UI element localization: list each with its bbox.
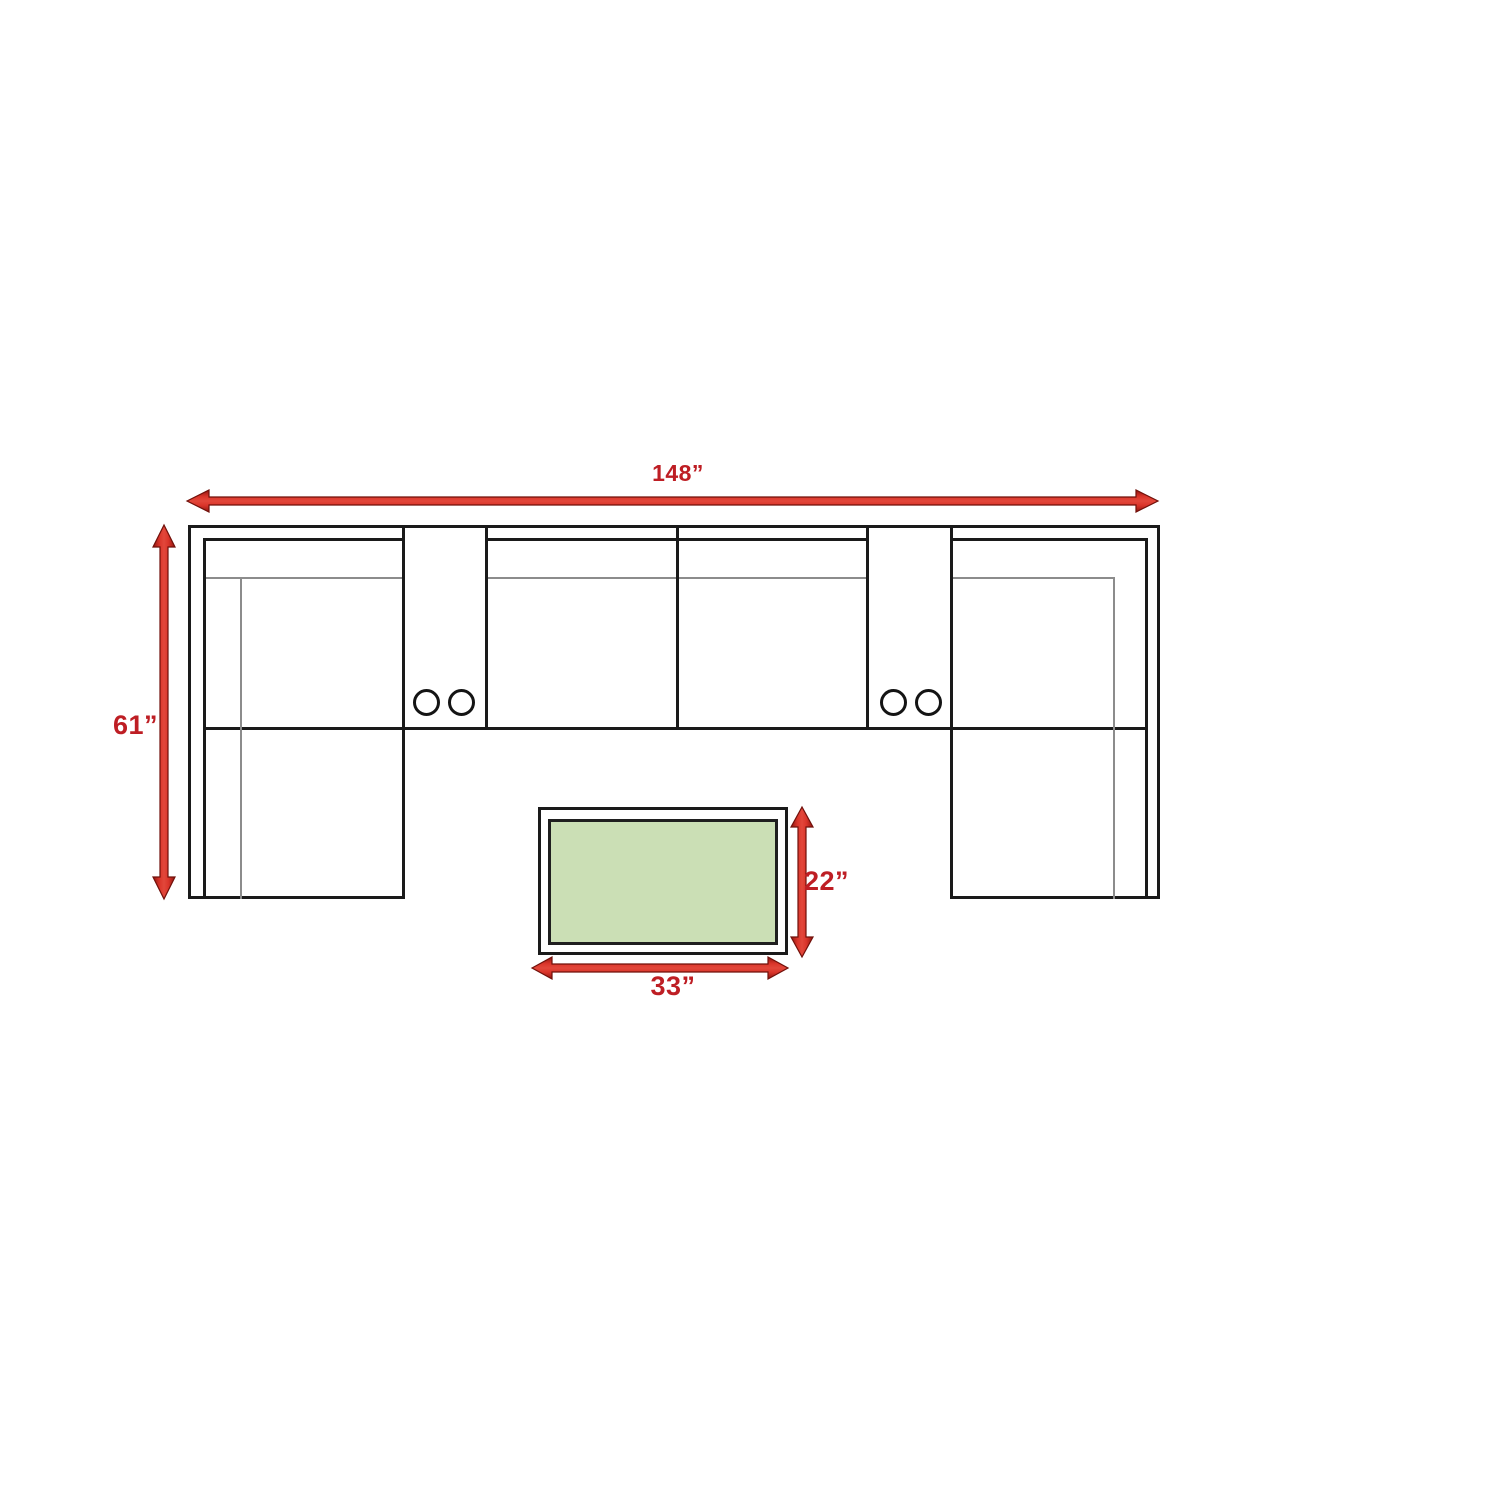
- right-chaise-bottom-edge: [950, 896, 1160, 899]
- left-chaise-back-cushion-line: [203, 538, 404, 541]
- left-chaise-seam-vertical: [240, 577, 242, 899]
- sofa-left-inner-edge: [203, 538, 206, 899]
- left-chaise-cushion-seam: [203, 577, 403, 579]
- right-console-right-edge: [950, 525, 953, 899]
- middle-seat-divider: [676, 525, 679, 730]
- sofa-right-outer-edge: [1157, 525, 1160, 899]
- left-console-right-edge: [485, 525, 488, 730]
- right-console-left-edge: [866, 525, 869, 730]
- sofa-depth-label: 61”: [66, 711, 158, 741]
- left-chaise-bottom-edge: [188, 896, 404, 899]
- sofa-right-inner-edge: [1145, 538, 1148, 899]
- cupholder-circle: [448, 689, 475, 716]
- right-chaise-seam-vertical: [1113, 577, 1115, 899]
- cupholder-circle: [413, 689, 440, 716]
- sofa-top-edge: [188, 525, 1160, 528]
- left-console-left-edge: [402, 525, 405, 899]
- coffee-table-top: [548, 819, 778, 945]
- sofa-width-label: 148”: [578, 461, 778, 486]
- diagram-canvas: 148” 61” 22” 33”: [0, 0, 1500, 1500]
- cupholder-circle: [915, 689, 942, 716]
- sofa-left-outer-edge: [188, 525, 191, 899]
- table-length-label: 33”: [588, 972, 758, 1002]
- right-chaise-back-cushion-line: [950, 538, 1148, 541]
- right-chaise-cushion-seam: [950, 577, 1114, 579]
- cupholder-circle: [880, 689, 907, 716]
- sofa-width-dimension-arrow: [185, 488, 1160, 514]
- table-depth-label: 22”: [804, 867, 894, 897]
